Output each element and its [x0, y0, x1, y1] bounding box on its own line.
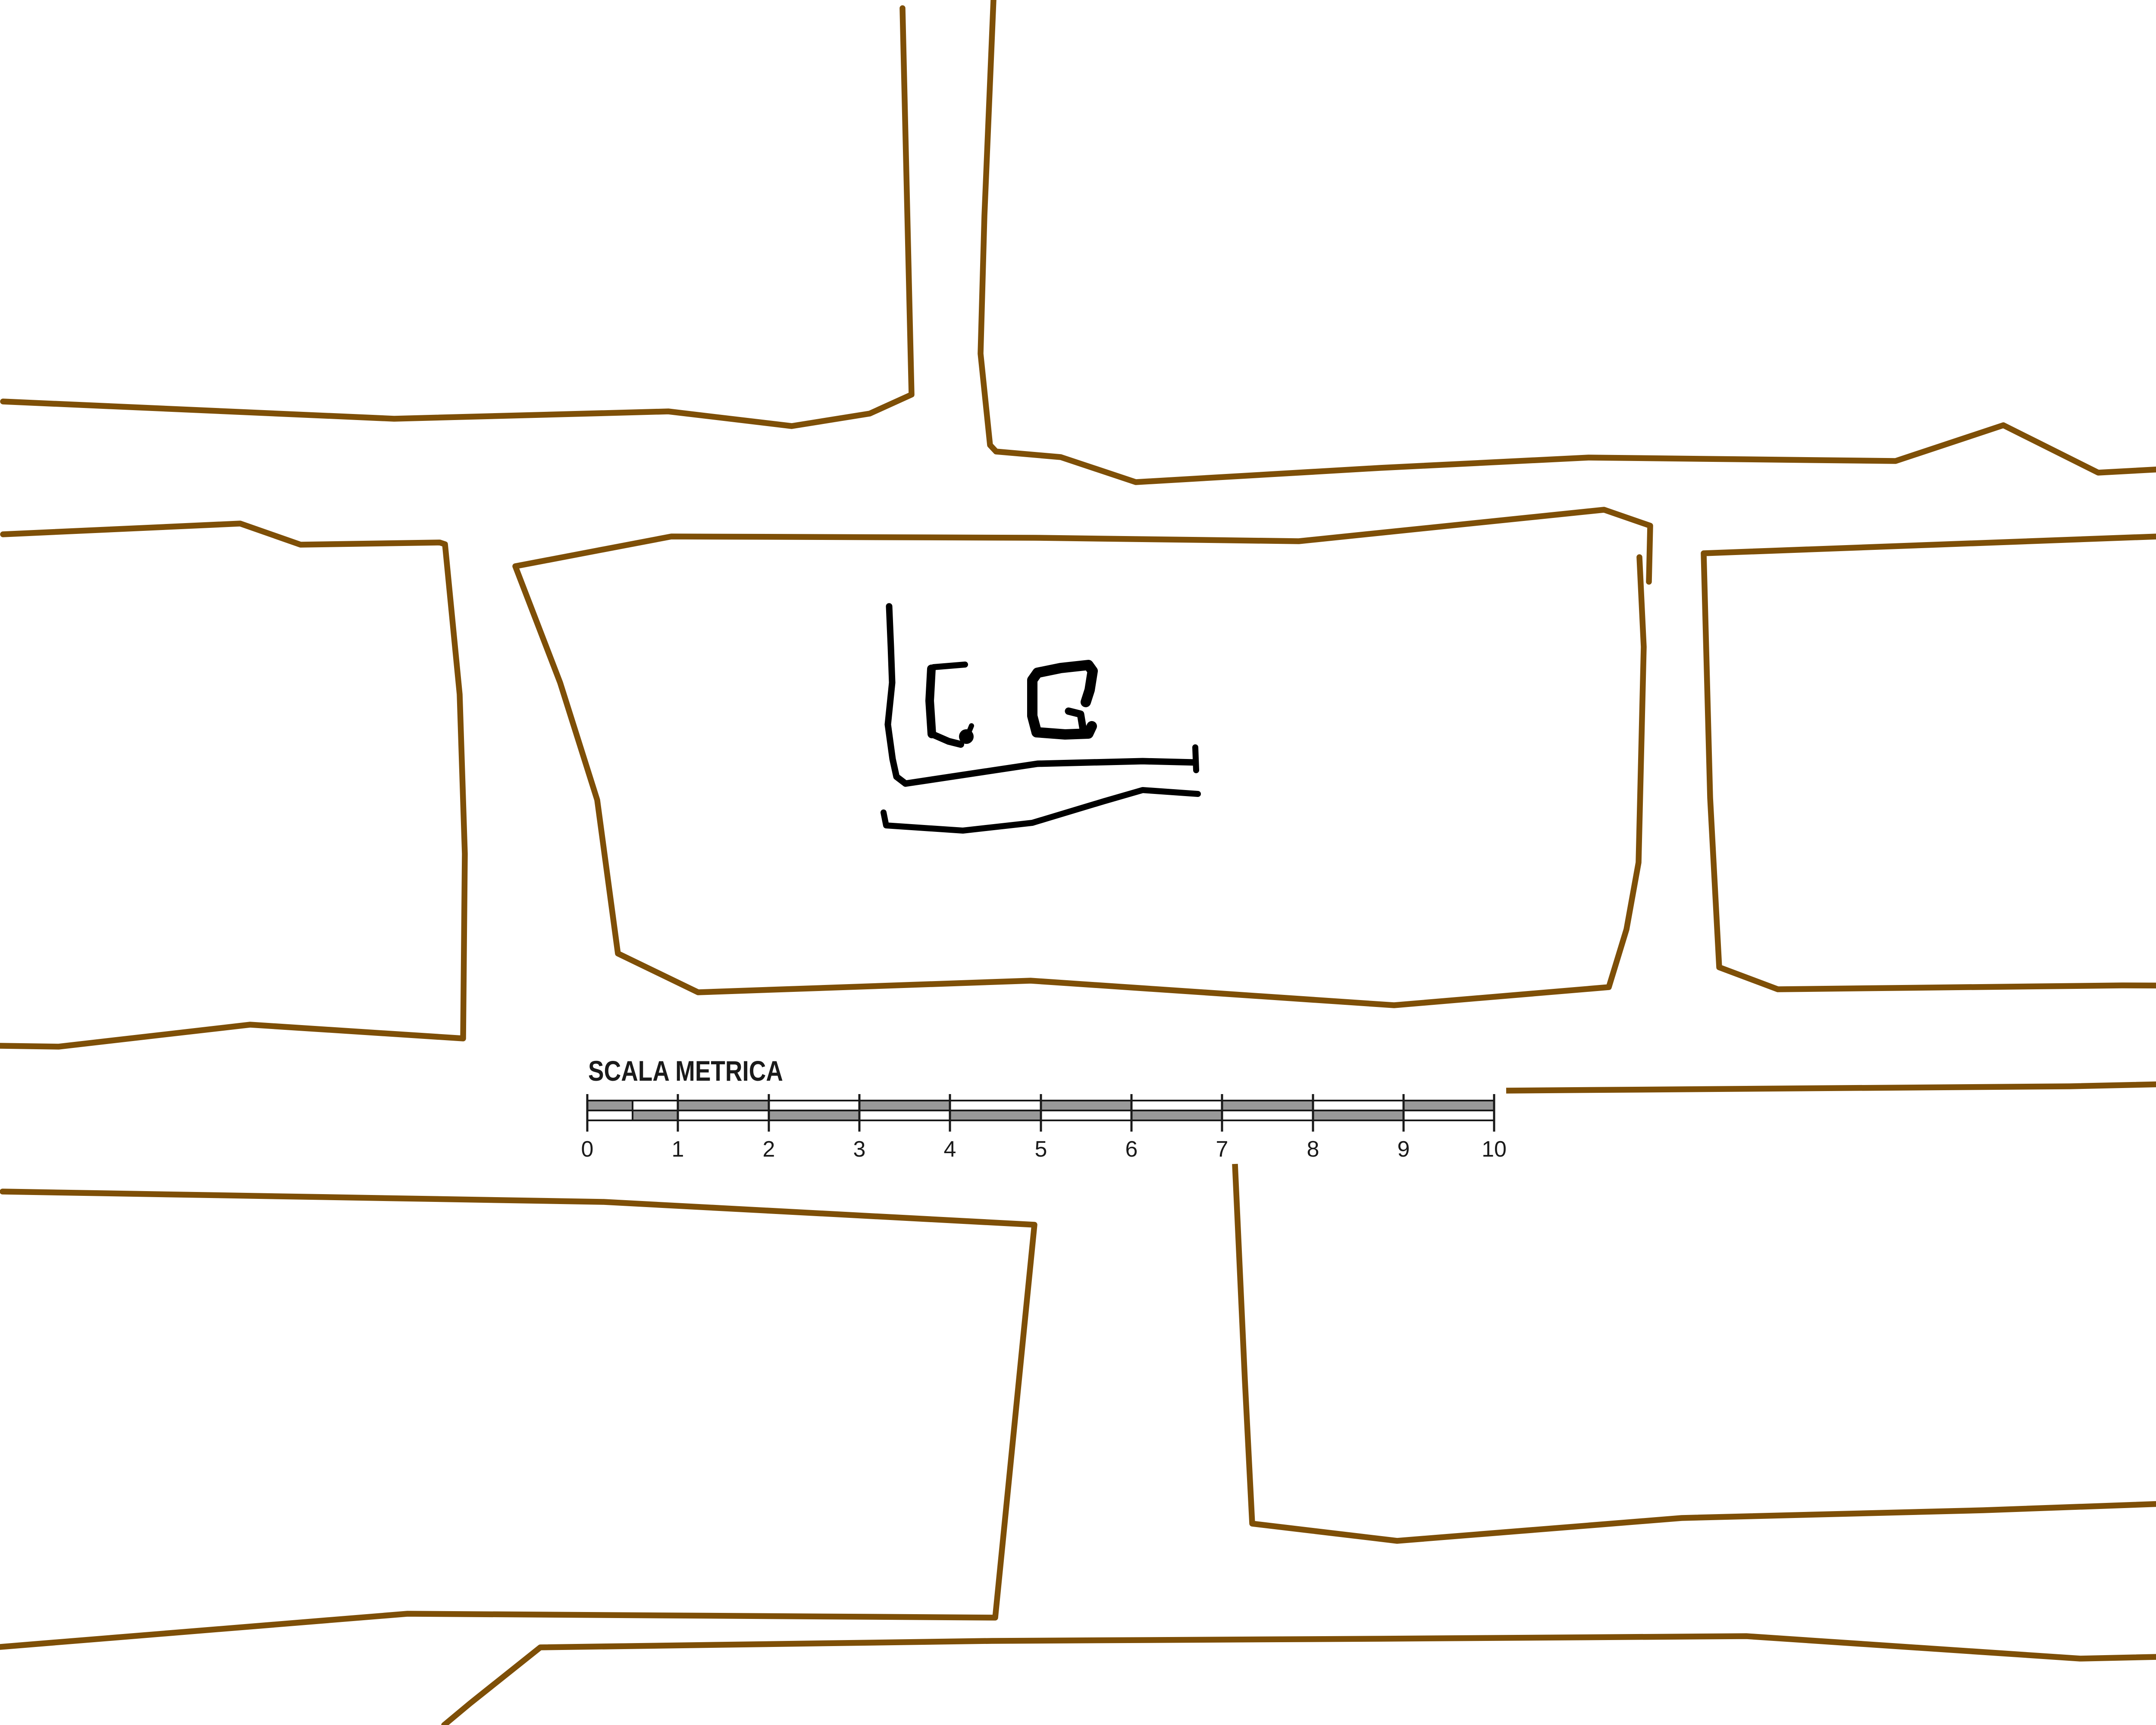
- svg-text:0: 0: [581, 1137, 594, 1162]
- svg-text:1: 1: [672, 1137, 684, 1162]
- svg-text:8: 8: [1307, 1137, 1319, 1162]
- svg-text:SCALA METRICA: SCALA METRICA: [588, 1055, 783, 1087]
- svg-text:5: 5: [1035, 1137, 1047, 1162]
- svg-text:3: 3: [853, 1137, 866, 1162]
- svg-text:6: 6: [1125, 1137, 1138, 1162]
- svg-text:9: 9: [1398, 1137, 1410, 1162]
- svg-text:10: 10: [1482, 1137, 1507, 1162]
- svg-text:7: 7: [1216, 1137, 1228, 1162]
- svg-text:4: 4: [944, 1137, 956, 1162]
- svg-text:2: 2: [763, 1137, 775, 1162]
